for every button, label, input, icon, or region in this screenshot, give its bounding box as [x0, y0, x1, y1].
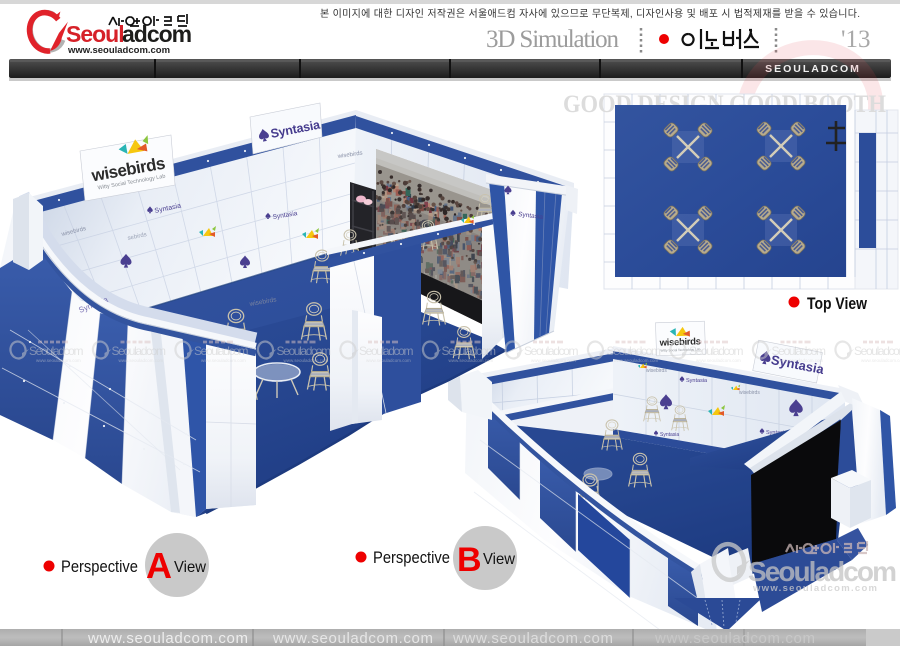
- svg-text:B: B: [457, 541, 482, 579]
- svg-text:adcom: adcom: [122, 21, 192, 47]
- svg-text:www.seouladcom.com: www.seouladcom.com: [452, 630, 613, 647]
- svg-text:www.seouladcom.com: www.seouladcom.com: [366, 358, 411, 363]
- svg-text:www.seouladcom.com: www.seouladcom.com: [201, 358, 246, 363]
- svg-text:www.seouladcom.com: www.seouladcom.com: [284, 358, 329, 363]
- svg-text:www.seouladcom.com: www.seouladcom.com: [449, 358, 494, 363]
- svg-text:Seouladcom: Seouladcom: [359, 344, 414, 358]
- svg-text:www.seouladcom.com: www.seouladcom.com: [272, 630, 433, 647]
- svg-text:본 이미지에 대한 디자인 저작권은 서울애드컴 자사에 있: 본 이미지에 대한 디자인 저작권은 서울애드컴 자사에 있으므로 무단복제, …: [320, 8, 860, 20]
- svg-text:www.seouladcom.com: www.seouladcom.com: [654, 630, 815, 647]
- svg-text:A: A: [146, 545, 172, 586]
- svg-text:Seouladcom: Seouladcom: [772, 344, 827, 358]
- svg-text:Perspective: Perspective: [373, 548, 450, 567]
- svg-text:Seouladcom: Seouladcom: [194, 344, 249, 358]
- svg-text:View: View: [483, 551, 515, 568]
- svg-text:www.seouladcom.com: www.seouladcom.com: [36, 358, 81, 363]
- svg-text:Seouladcom: Seouladcom: [112, 344, 167, 358]
- svg-text:www.seouladcom.com: www.seouladcom.com: [119, 358, 164, 363]
- svg-text:Perspective: Perspective: [61, 557, 138, 576]
- svg-text:Syntasia: Syntasia: [660, 432, 679, 438]
- svg-text:3D Simulation: 3D Simulation: [486, 26, 620, 53]
- svg-text:Seouladcom: Seouladcom: [524, 344, 579, 358]
- svg-text:Seouladcom: Seouladcom: [277, 344, 332, 358]
- svg-text:www.seouladcom.com: www.seouladcom.com: [861, 358, 900, 363]
- svg-text:Seouladcom: Seouladcom: [689, 344, 744, 358]
- svg-text:www.seouladcom.com: www.seouladcom.com: [696, 358, 741, 363]
- svg-text:www.seouladcom.com: www.seouladcom.com: [752, 583, 877, 594]
- svg-text:wisebirds: wisebirds: [646, 368, 667, 374]
- svg-text:Syntasia: Syntasia: [686, 378, 708, 384]
- svg-text:www.seouladcom.com: www.seouladcom.com: [614, 358, 659, 363]
- svg-text:Top View: Top View: [807, 294, 868, 313]
- svg-text:www.seouladcom.com: www.seouladcom.com: [67, 45, 170, 56]
- svg-text:www.seouladcom.com: www.seouladcom.com: [531, 358, 576, 363]
- svg-text:Seouladcom: Seouladcom: [607, 344, 662, 358]
- svg-text:www.seouladcom.com: www.seouladcom.com: [87, 630, 248, 647]
- svg-text:Seoul: Seoul: [66, 21, 124, 47]
- svg-text:wisebirds: wisebirds: [739, 390, 760, 396]
- svg-text:Seouladcom: Seouladcom: [854, 344, 900, 358]
- svg-text:View: View: [174, 559, 206, 576]
- svg-text:Seouladcom: Seouladcom: [29, 344, 84, 358]
- svg-text:www.seouladcom.com: www.seouladcom.com: [779, 358, 824, 363]
- svg-text:Seouladcom: Seouladcom: [442, 344, 497, 358]
